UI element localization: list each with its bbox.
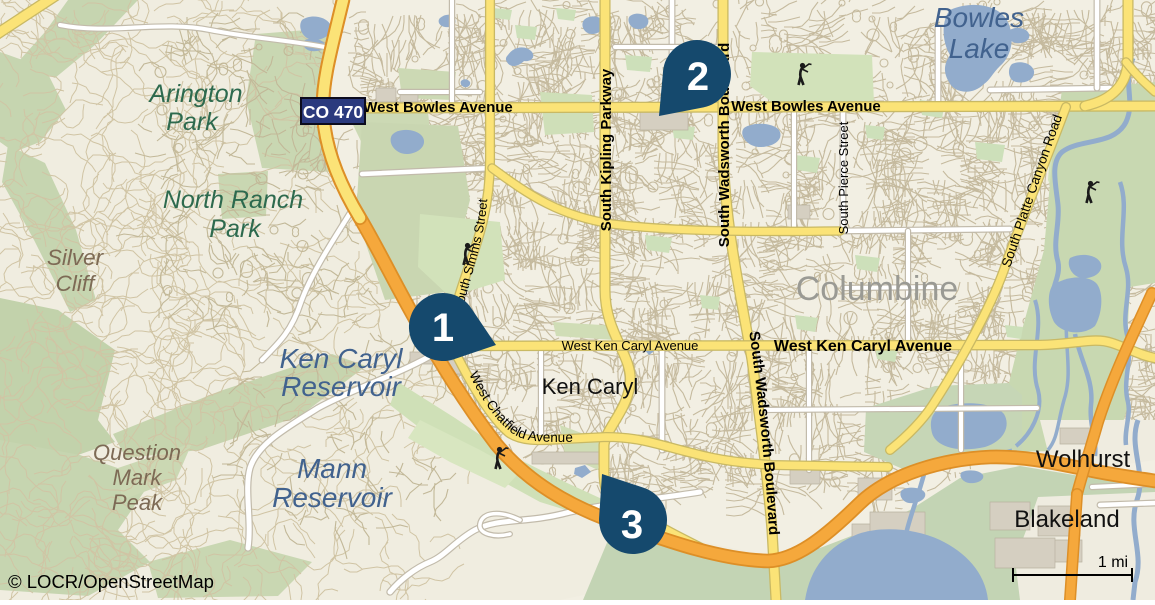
svg-text:Wolhurst: Wolhurst — [1036, 446, 1131, 473]
svg-text:South Kipling Parkway: South Kipling Parkway — [598, 68, 615, 231]
svg-text:Question: Question — [93, 440, 181, 465]
svg-text:1: 1 — [432, 306, 454, 350]
svg-text:Reservoir: Reservoir — [272, 482, 393, 513]
svg-text:Peak: Peak — [112, 490, 163, 515]
svg-text:1 mi: 1 mi — [1098, 554, 1128, 571]
svg-text:West Ken Caryl Avenue: West Ken Caryl Avenue — [562, 338, 699, 353]
svg-text:Ken Caryl: Ken Caryl — [542, 374, 639, 399]
svg-text:Park: Park — [209, 215, 262, 243]
svg-text:Blakeland: Blakeland — [1014, 506, 1119, 533]
svg-text:Park: Park — [166, 108, 219, 136]
svg-text:West Bowles Avenue: West Bowles Avenue — [731, 98, 881, 115]
svg-text:Reservoir: Reservoir — [281, 371, 402, 402]
svg-text:West Ken Caryl Avenue: West Ken Caryl Avenue — [774, 338, 952, 355]
svg-text:Bowles: Bowles — [934, 2, 1024, 33]
svg-text:Cliff: Cliff — [56, 271, 97, 296]
svg-text:North Ranch: North Ranch — [163, 186, 303, 214]
svg-text:Mark: Mark — [113, 465, 163, 490]
svg-text:CO 470: CO 470 — [303, 102, 364, 122]
svg-text:West Bowles Avenue: West Bowles Avenue — [363, 99, 513, 116]
svg-text:Columbine: Columbine — [796, 270, 959, 308]
svg-text:South Pierce Street: South Pierce Street — [836, 121, 851, 234]
svg-text:Ken Caryl: Ken Caryl — [280, 343, 404, 374]
svg-text:Silver: Silver — [47, 245, 105, 270]
svg-text:Arington: Arington — [147, 80, 242, 108]
svg-text:Lake: Lake — [949, 33, 1010, 64]
svg-text:3: 3 — [621, 503, 643, 547]
svg-text:Mann: Mann — [297, 453, 367, 484]
svg-text:2: 2 — [687, 55, 709, 99]
svg-text:© LOCR/OpenStreetMap: © LOCR/OpenStreetMap — [8, 571, 214, 592]
